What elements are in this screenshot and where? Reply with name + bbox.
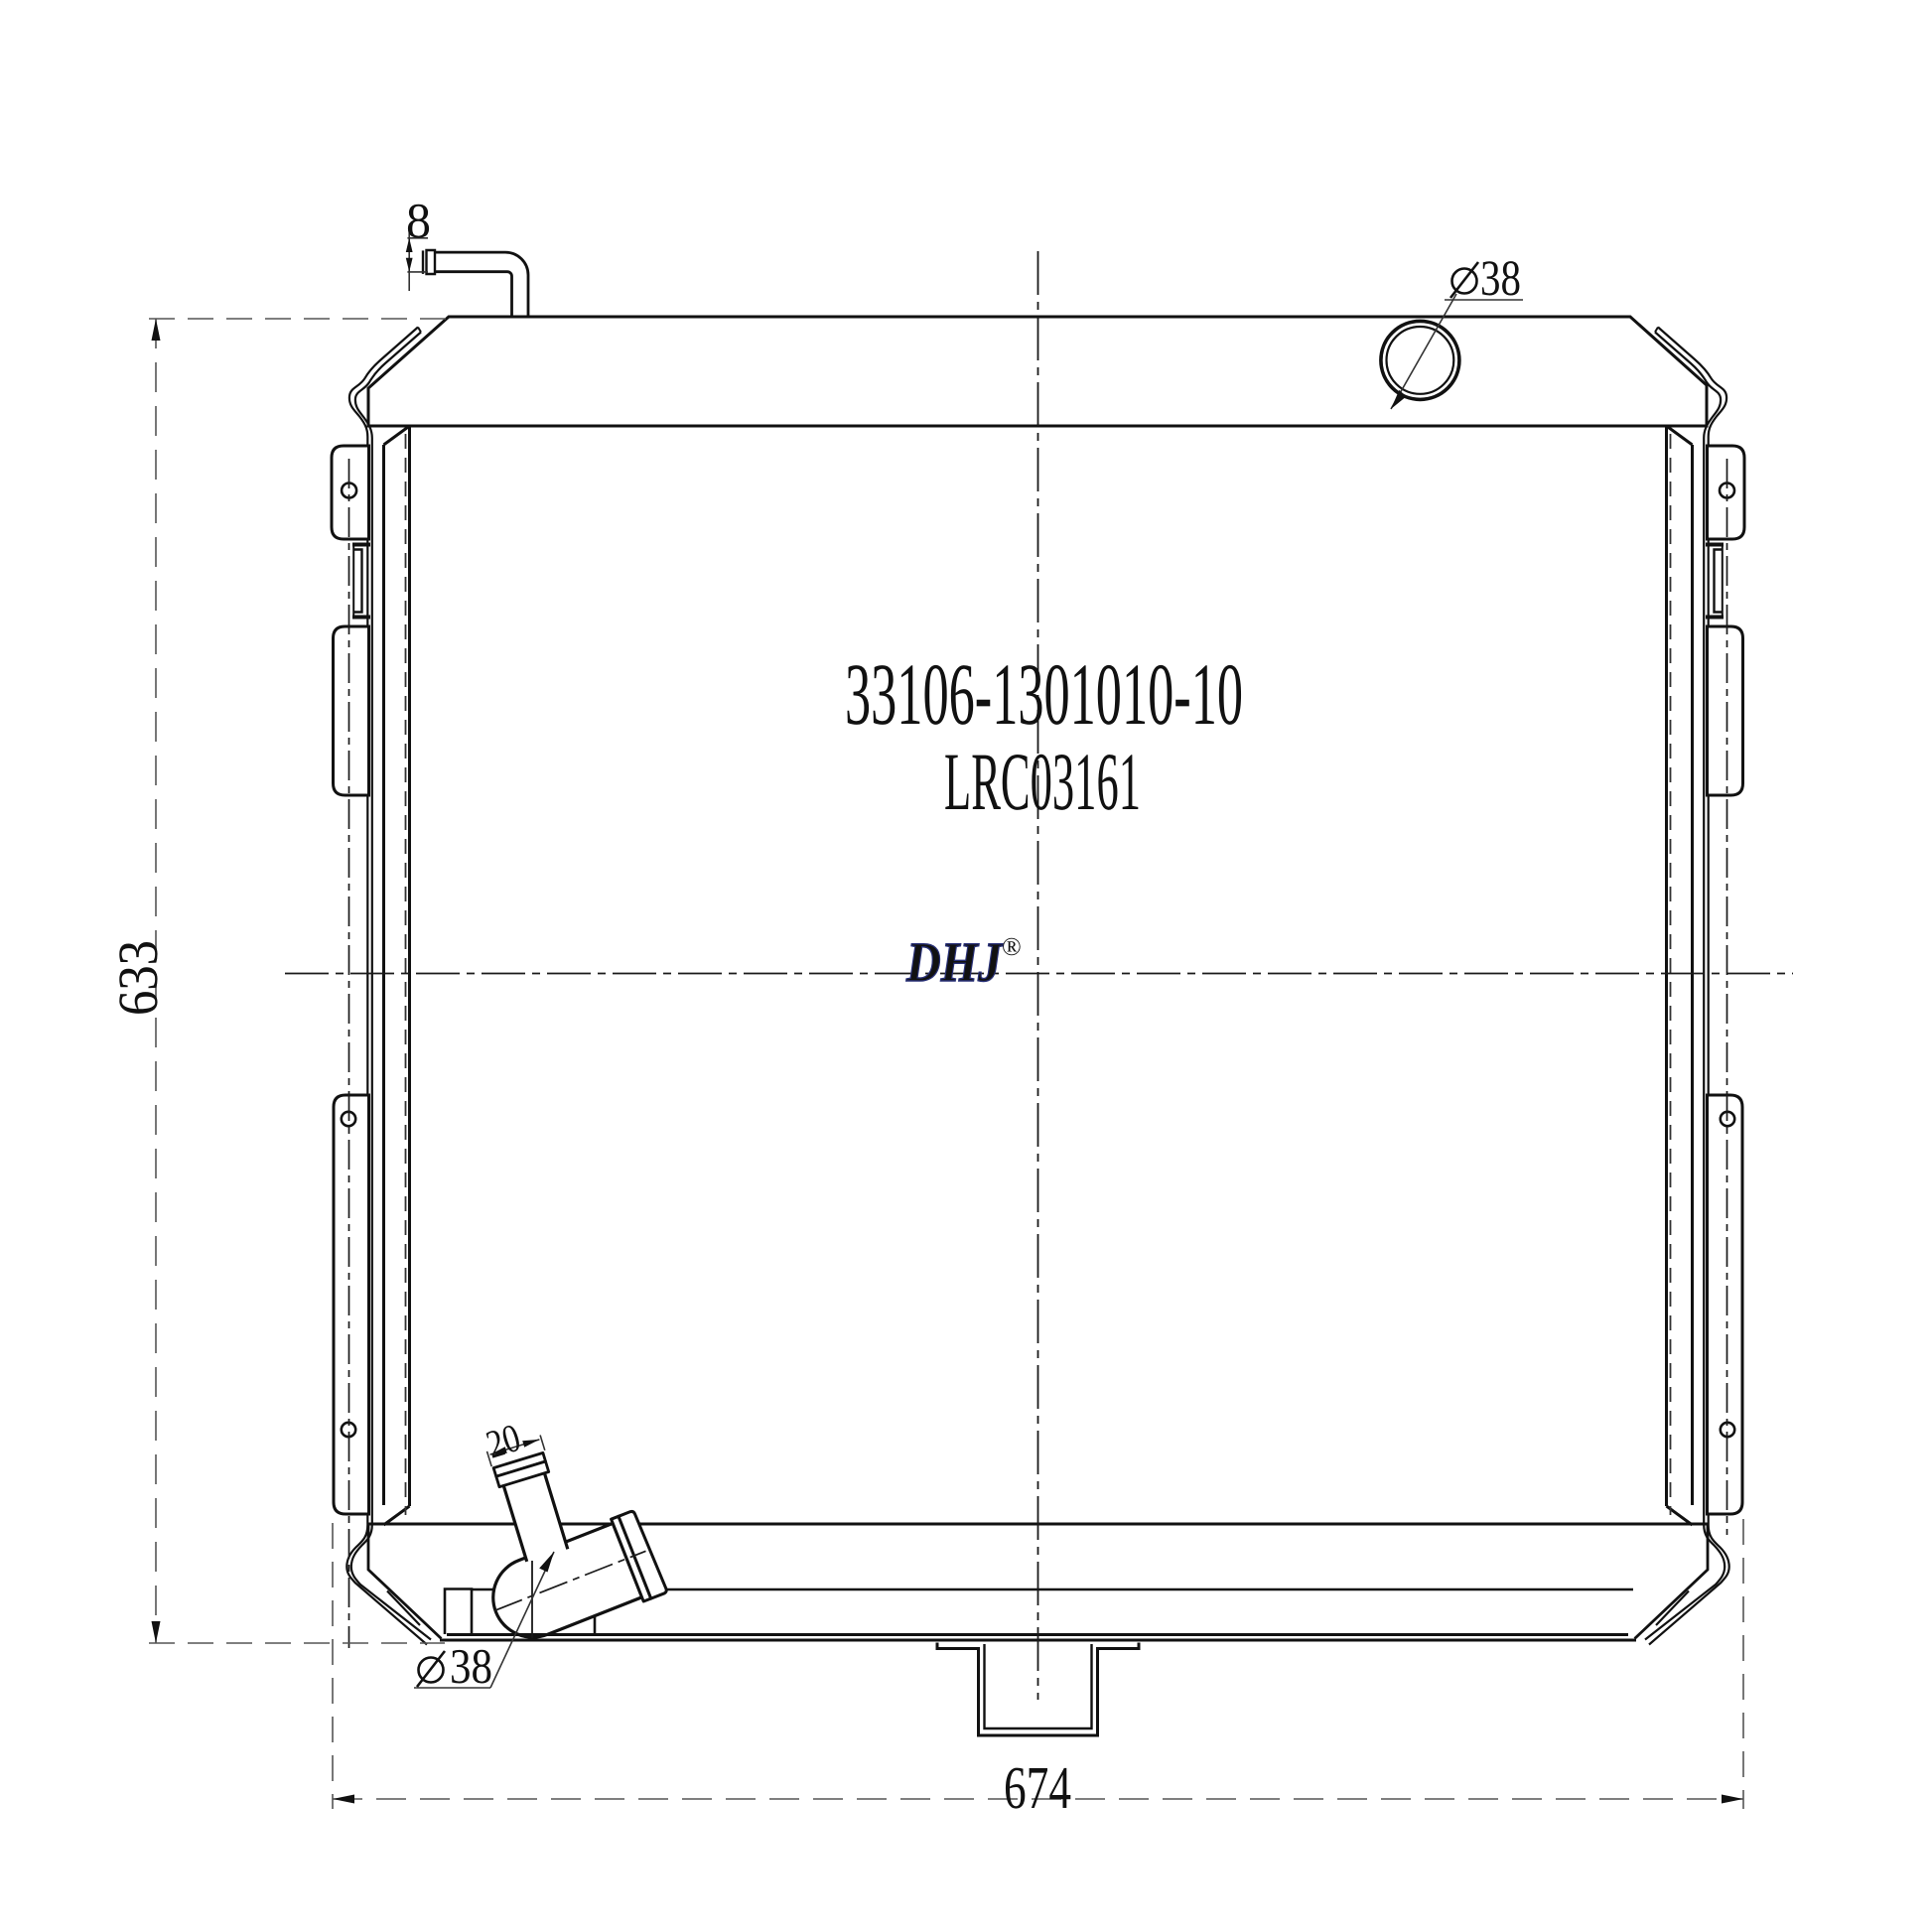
svg-text:DHJ: DHJ [905, 931, 1003, 994]
svg-text:674: 674 [1004, 1755, 1071, 1822]
svg-text:8: 8 [406, 193, 431, 248]
svg-text:33106-1301010-10: 33106-1301010-10 [845, 646, 1243, 744]
svg-text:38: 38 [450, 1638, 492, 1694]
svg-text:633: 633 [107, 940, 170, 1016]
svg-text:LRC03161: LRC03161 [944, 736, 1141, 827]
svg-text:38: 38 [1480, 251, 1521, 307]
svg-text:®: ® [1002, 932, 1022, 961]
